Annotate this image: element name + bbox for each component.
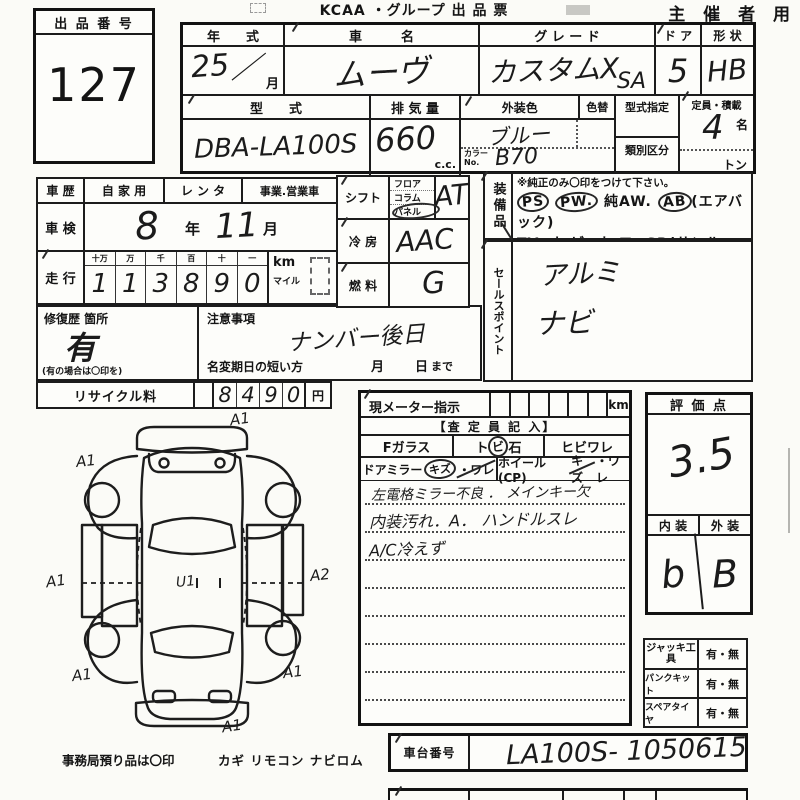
displacement-label: 排 気 量 (371, 96, 459, 120)
interior-value: b (644, 533, 704, 614)
meter-digit-box (589, 393, 607, 416)
diagram-annotation-u1: U1 (175, 573, 195, 591)
color-cell: 外装色 色替 ブルー カラーNo. B70 (461, 96, 616, 175)
equipment-row2: TV. ナ ビ. カ ワ. SR(サンルーフ) (517, 233, 747, 238)
auction-sheet: KCAA ・グループ 出 品 票 主 催 者 用 出 品 番 号 127 年 式… (0, 0, 800, 800)
assessor-note-1: 左電格ミラー不良 ． メインキー欠 (371, 481, 590, 505)
partial-bottom-row (388, 788, 748, 800)
diagram-annotation: A1 (229, 409, 251, 430)
exterior-label: 外 装 (700, 516, 750, 534)
ton-label: トン (723, 156, 747, 173)
notes-ruled-line (365, 615, 625, 617)
equipment-row1: PS PW. 純AW. AB(エアバック) (517, 191, 747, 232)
puncture-kit-value: 有・無 (699, 670, 746, 697)
model-label: 型 式 (183, 96, 369, 120)
grade-sub: SA (617, 69, 646, 94)
rating-label: 評 価 点 (648, 395, 750, 415)
repair-cell: 修復歴 箇所 有 (有の場合は〇印を) (38, 307, 199, 379)
controls-table: シフト フロア コラム パネル AT 冷 房 AAC 燃 料 G (336, 175, 470, 308)
door-mirror-label: ドアミラー キズ・ワレ (361, 458, 498, 480)
history-option-private: 自 家 用 (85, 179, 165, 202)
shaken-month-unit: 月 (263, 218, 278, 239)
lot-label: 出 品 番 号 (36, 11, 152, 35)
meter-unit: km (606, 393, 629, 416)
assessor-note-2: 内装汚れ．A． ハンドルスレ (369, 505, 577, 533)
displacement-cell: 排 気 量 660 c.c. (371, 96, 461, 175)
mileage-digits: 十万1 万1 千3 百8 十9 一0 (85, 252, 269, 303)
mileage-digit: 9 (207, 266, 237, 301)
car-name-cell: 車 名 ムーヴ (285, 25, 480, 96)
mileage-col-header: 十万 (85, 252, 115, 266)
exterior-value: B (698, 535, 752, 614)
jack-tools-label: ジャッキ工具 (645, 640, 699, 668)
meter-digit-box (511, 393, 531, 416)
grade-value: カスタムX (487, 47, 620, 92)
ac-value: AAC (395, 222, 455, 259)
chassis-number-row: 車台番号 LA100S- 1050615 (388, 733, 748, 772)
assessor-notes-area: 左電格ミラー不良 ． メインキー欠 内装汚れ．A． ハンドルスレ A/C冷えず (361, 481, 629, 725)
spare-tire-label: スペアタイヤ (645, 699, 699, 726)
fuel-value: G (421, 265, 447, 302)
type-designation-cell: 型式指定 類別区分 (616, 96, 680, 175)
diagram-annotation: A1 (221, 716, 243, 737)
rating-box: 評 価 点 3.5 内 装 外 装 b B (645, 392, 753, 615)
mileage-digit: 3 (146, 266, 176, 301)
year-slash: ／ (231, 43, 261, 87)
notes-ruled-line (365, 699, 625, 701)
model-cell: 型 式 DBA-LA100S (183, 96, 371, 175)
wheel-label: ホイール(CP) キズ・ワレ (498, 458, 629, 480)
equipment-label: 装備品 (489, 182, 508, 230)
shape-cell: 形 状 HB (702, 25, 753, 96)
notes-ruled-line (365, 643, 625, 645)
year-value: 25 (190, 48, 231, 86)
mile-label: マイル (273, 274, 300, 287)
sales-point-1: アルミ (538, 250, 621, 293)
door-label: ド ア (656, 25, 700, 47)
mirror-kizu: キズ (424, 458, 457, 480)
equipment-item-ps: PS (516, 191, 550, 213)
km-label: km (273, 255, 295, 270)
color-no-label: カラーNo. (464, 150, 488, 168)
capacity-divider (680, 149, 753, 151)
partial-divider (468, 791, 470, 800)
repair-value: 有 (64, 323, 96, 369)
shape-label: 形 状 (702, 25, 753, 47)
displacement-unit: c.c. (435, 158, 456, 171)
equipment-item-aw: 純AW. (604, 194, 652, 210)
mileage-digit: 8 (177, 266, 207, 301)
repair-note: (有の場合は〇印を) (42, 364, 122, 377)
displacement-value: 660 (374, 118, 437, 159)
assessor-box: 現メーター指示 km 【査 定 員 記 入】 Fガラス トビ石 ヒビワレ ドアミ… (358, 390, 632, 726)
mileage-label: 走 行 (38, 252, 85, 303)
puncture-kit-label: パンクキット (645, 670, 699, 697)
grade-cell: グ レ ー ド カスタムX SA (480, 25, 656, 96)
partial-divider (655, 791, 657, 800)
car-name-label: 車 名 (285, 25, 478, 47)
rename-month-label: 月 (371, 356, 384, 375)
color-change-label: 色替 (578, 96, 614, 118)
exterior-color-label: 外装色 (461, 96, 578, 118)
partial-divider (623, 791, 625, 800)
car-name-value: ムーヴ (332, 45, 430, 96)
diagram-annotation: A1 (71, 665, 93, 685)
door-value: 5 (668, 52, 688, 90)
shift-option-floor: フロア (390, 177, 434, 191)
meter-digit-box (569, 393, 589, 416)
sales-points-strip: セールスポイント (485, 242, 513, 380)
meter-digit-box (550, 393, 570, 416)
meter-digit-box (530, 393, 550, 416)
lot-number-box: 出 品 番 号 127 (33, 8, 155, 164)
equipment-item-tv: TV. (517, 236, 544, 238)
meter-check-box (310, 257, 330, 295)
mileage-col-header: 万 (116, 252, 146, 266)
rating-score: 3.5 (664, 428, 738, 488)
history-option-business: 事業.営業車 (243, 179, 336, 202)
equipment-note: ※純正のみ〇印をつけて下さい。 (517, 175, 747, 190)
model-value: DBA-LA100S (194, 129, 358, 165)
page-title: KCAA ・グループ 出 品 票 (278, 0, 550, 20)
diagram-annotation: A2 (309, 565, 331, 585)
mileage-col-header: 千 (146, 252, 176, 266)
sales-point-2: ナビ (534, 299, 593, 343)
office-note: 事務局預り品は〇印 (62, 750, 175, 769)
chassis-label: 車台番号 (391, 736, 470, 769)
equipment-item-kawa: カ ワ. (598, 236, 640, 238)
shape-value: HB (706, 52, 749, 88)
rename-deadline-label: 名変期日の短い方 (207, 358, 303, 375)
mileage-col-header: 十 (207, 252, 237, 266)
assessor-header: 【査 定 員 記 入】 (361, 418, 629, 436)
shift-label: シフト (338, 177, 390, 218)
caution-value: ナンバー後日 (286, 314, 426, 358)
history-table: 車 歴 自 家 用 レ ン タ 事業.営業車 車 検 8 年 11 月 走 行 … (36, 177, 338, 305)
scan-smudge (250, 3, 266, 13)
partial-divider (562, 791, 564, 800)
spare-tire-value: 有・無 (699, 699, 746, 726)
scan-smudge (566, 5, 590, 15)
diagram-annotation: A1 (75, 451, 97, 471)
class-division-label: 類別区分 (616, 138, 678, 162)
chassis-value: LA100S- 1050615 (506, 732, 748, 771)
color-change-divider (576, 120, 578, 147)
shaken-month: 11 (214, 205, 259, 247)
sales-points-label: セールスポイント (490, 267, 506, 355)
month-label: 月 (266, 73, 279, 92)
interior-label: 内 装 (648, 516, 700, 534)
office-items: カギ リモコン ナビロム (218, 750, 364, 769)
rename-day-label: 日 (415, 356, 428, 375)
equipment-item-pw: PW. (555, 191, 599, 214)
meter-digit-box (491, 393, 511, 416)
meter-boxes (489, 393, 606, 416)
history-option-rental: レ ン タ (165, 179, 243, 202)
fuel-label: 燃 料 (338, 264, 390, 306)
caution-label: 注意事項 (207, 310, 255, 327)
sales-points-box: セールスポイント アルミ ナビ (483, 240, 753, 382)
history-label: 車 歴 (38, 179, 85, 202)
mileage-digit: 1 (85, 266, 115, 301)
mileage-digit: 0 (238, 266, 268, 301)
door-cell: ド ア 5 (656, 25, 702, 96)
scan-artifact (788, 448, 790, 533)
mileage-col-header: 百 (177, 252, 207, 266)
capacity-value: 4 (702, 108, 724, 148)
caution-cell: 注意事項 ナンバー後日 名変期日の短い方 月 日 まで (199, 307, 480, 379)
year-cell: 年 式 25 ／ 月 (183, 25, 285, 96)
diagram-annotation: A1 (45, 571, 67, 592)
accessories-box: ジャッキ工具 有・無 パンクキット 有・無 スペアタイヤ 有・無 (643, 638, 748, 728)
mileage-digit: 1 (116, 266, 146, 301)
shaken-year: 8 (133, 203, 160, 249)
equipment-box: 装備品 ※純正のみ〇印をつけて下さい。 PS PW. 純AW. AB(エアバック… (483, 172, 753, 240)
shaken-year-unit: 年 (185, 218, 200, 239)
ac-label: 冷 房 (338, 220, 390, 262)
shaken-label: 車 検 (38, 204, 85, 250)
meter-label: 現メーター指示 (369, 397, 460, 416)
equipment-strip: 装備品 (485, 174, 513, 238)
type-designation-label: 型式指定 (616, 96, 678, 118)
repair-caution-box: 修復歴 箇所 有 (有の場合は〇印を) 注意事項 ナンバー後日 名変期日の短い方… (36, 305, 482, 381)
capacity-cell: 定員・積載 4 名 トン (680, 96, 753, 175)
lot-number: 127 (36, 35, 152, 135)
diagram-annotation: A1 (282, 662, 304, 682)
equipment-item-ab: AB (657, 191, 692, 213)
rename-made-label: まで (431, 358, 453, 374)
assessor-note-3: A/C冷えず (369, 535, 445, 562)
color-no-value: B70 (494, 144, 538, 171)
equipment-item-navi: ナ ビ. (550, 236, 592, 238)
front-glass-label: Fガラス (361, 436, 454, 456)
grade-label: グ レ ー ド (480, 25, 654, 47)
notes-ruled-line (365, 587, 625, 589)
notes-ruled-line (365, 671, 625, 673)
jack-tools-value: 有・無 (699, 640, 746, 668)
mileage-col-header: 一 (238, 252, 268, 266)
capacity-unit: 名 (736, 116, 748, 133)
